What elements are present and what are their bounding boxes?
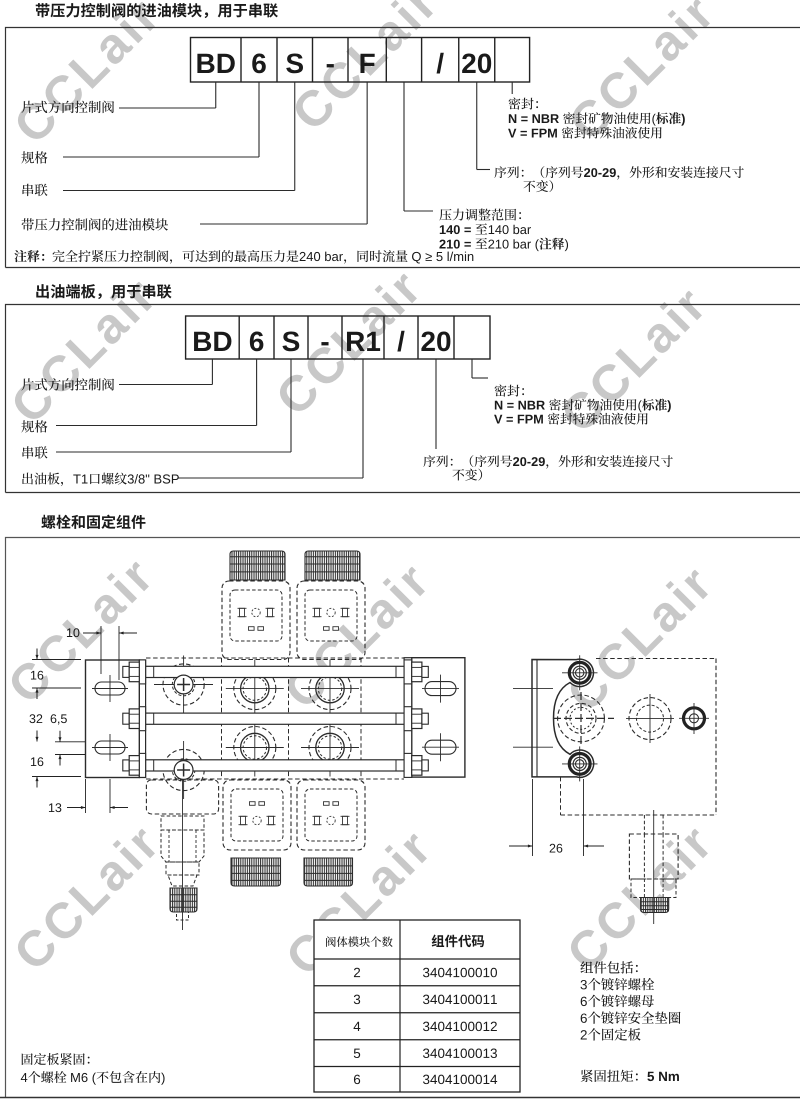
svg-text:CCLair: CCLair xyxy=(558,0,726,151)
svg-text:CCLair: CCLair xyxy=(3,0,171,154)
svg-text:CCLair: CCLair xyxy=(3,813,171,981)
svg-text:CCLair: CCLair xyxy=(281,0,449,141)
